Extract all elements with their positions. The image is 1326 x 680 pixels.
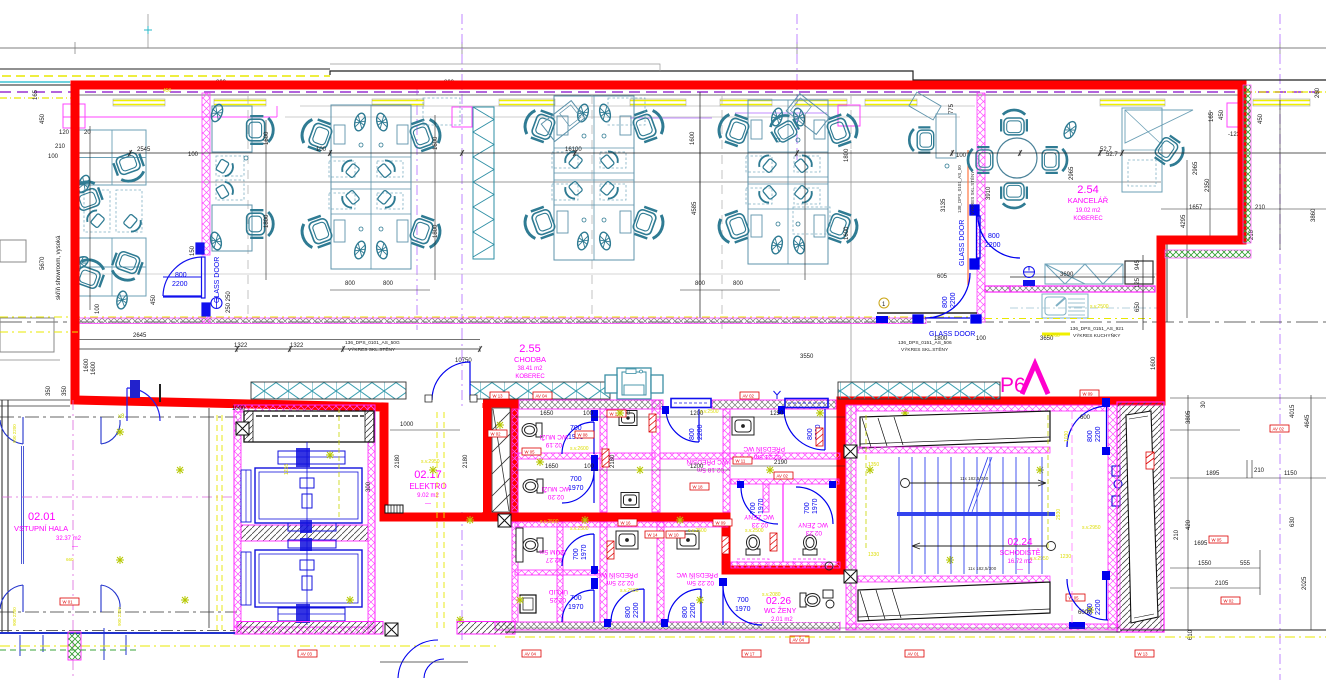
svg-text:PŘEDSÍŇ WC: PŘEDSÍŇ WC [596,571,638,580]
svg-text:30: 30 [1201,401,1207,408]
svg-text:700: 700 [570,595,582,602]
svg-text:3805: 3805 [1186,410,1192,424]
svg-text:800: 800 [942,296,949,308]
svg-text:WC MUŽI: WC MUŽI [539,433,568,442]
svg-text:s.v.2500: s.v.2500 [540,519,559,525]
svg-text:100: 100 [583,411,594,417]
svg-text:W 02: W 02 [491,432,502,437]
svg-text:02.24: 02.24 [1007,537,1032,548]
svg-text:250 250: 250 250 [226,291,232,313]
svg-text:800: 800 [625,606,632,618]
svg-text:1600: 1600 [91,361,97,375]
svg-text:260: 260 [1315,87,1321,98]
svg-text:800: 800 [345,281,356,287]
svg-text:1600: 1600 [84,358,90,372]
svg-text:2.01 m2: 2.01 m2 [771,617,793,623]
svg-text:2.54: 2.54 [1077,184,1098,196]
svg-text:700: 700 [570,476,582,483]
svg-text:AV 01: AV 01 [908,652,920,657]
svg-text:GLASS DOOR: GLASS DOOR [214,257,221,303]
svg-text:W 10: W 10 [669,533,680,538]
svg-text:1550: 1550 [1198,561,1212,567]
svg-text:2645: 2645 [133,333,147,339]
svg-text:W 13: W 13 [493,394,504,399]
svg-text:SCHODIŠTĚ: SCHODIŠTĚ [1000,548,1041,557]
svg-text:19.02 m2: 19.02 m2 [1075,208,1101,214]
svg-text:02.23: 02.23 [751,521,768,528]
svg-text:WC ŽENY: WC ŽENY [743,513,774,522]
svg-text:1970: 1970 [568,604,584,611]
svg-text:4585: 4585 [692,201,698,215]
svg-text:s.v.2080: s.v.2080 [762,592,781,598]
svg-text:300: 300 [366,481,372,492]
svg-text:s.v.2500: s.v.2500 [745,528,764,534]
svg-text:2200: 2200 [690,602,697,618]
svg-text:W 01: W 01 [63,600,74,605]
svg-text:2200: 2200 [697,424,704,440]
svg-text:AV 02: AV 02 [777,474,789,479]
svg-text:1200: 1200 [690,464,704,470]
svg-text:900 2200: 900 2200 [117,607,122,626]
svg-text:1657: 1657 [1189,205,1203,211]
svg-text:450: 450 [1258,113,1264,124]
svg-text:700: 700 [737,597,749,604]
svg-text:800: 800 [682,606,689,618]
svg-text:2190: 2190 [774,460,788,466]
svg-text:AV 02: AV 02 [743,394,755,399]
svg-text:600: 600 [1080,415,1091,421]
svg-text:450: 450 [40,113,46,124]
svg-text:100: 100 [956,153,967,159]
svg-text:11x 182,5/300: 11x 182,5/300 [960,476,989,481]
svg-text:CHODBA: CHODBA [514,355,546,364]
svg-text:900 2200: 900 2200 [12,424,17,443]
svg-text:120: 120 [59,130,70,136]
svg-text:125: 125 [1135,277,1141,288]
svg-text:210: 210 [1174,529,1180,540]
svg-text:02.27: 02.27 [545,556,562,563]
svg-text:1695: 1695 [1194,541,1208,547]
svg-text:—: — [425,501,431,507]
svg-text:700: 700 [804,502,811,514]
svg-text:W 09: W 09 [716,521,727,526]
svg-text:02.19: 02.19 [545,441,562,448]
svg-text:630: 630 [1290,516,1296,527]
svg-text:W 17: W 17 [745,652,756,657]
svg-text:skříň showroom, vysoká: skříň showroom, vysoká [56,235,62,300]
svg-text:210: 210 [55,144,66,150]
svg-text:s.v.2950: s.v.2950 [1082,525,1101,531]
svg-text:1600: 1600 [690,131,696,145]
svg-text:450: 450 [151,294,157,305]
svg-text:ÚKLID: ÚKLID [549,588,568,597]
svg-text:s.v.2500: s.v.2500 [1090,304,1109,310]
svg-text:100: 100 [584,464,595,470]
svg-text:2965: 2965 [1069,166,1075,180]
svg-text:555: 555 [1240,561,1251,567]
svg-text:AV 04: AV 04 [793,638,805,643]
svg-text:3690: 3690 [1060,272,1074,278]
svg-text:KANCELÁŘ: KANCELÁŘ [1068,196,1109,205]
svg-text:1600: 1600 [844,226,850,240]
svg-text:1600: 1600 [264,131,270,145]
svg-text:02.25: 02.25 [549,596,566,603]
svg-text:PŘEDSÍŇ WC: PŘEDSÍŇ WC [743,445,785,454]
svg-text:W 09: W 09 [1083,392,1094,397]
svg-text:1230: 1230 [1060,554,1071,560]
svg-text:136_DPS_0151_AS_506: 136_DPS_0151_AS_506 [898,340,952,346]
svg-text:2965: 2965 [1193,161,1199,175]
svg-text:800: 800 [1087,430,1094,442]
svg-text:450: 450 [163,88,172,94]
svg-text:4295: 4295 [1181,214,1187,228]
svg-text:1600: 1600 [433,136,439,150]
svg-text:W 18: W 18 [693,485,704,490]
svg-text:VSTUPNÍ HALA: VSTUPNÍ HALA [14,524,68,533]
svg-text:2200: 2200 [950,292,957,308]
svg-text:W 13: W 13 [1138,652,1149,657]
svg-text:1970: 1970 [581,544,588,560]
svg-text:1322: 1322 [234,343,248,349]
svg-text:02.23: 02.23 [805,529,822,536]
svg-text:4645: 4645 [1305,414,1311,428]
svg-text:32.37 m2: 32.37 m2 [56,536,82,542]
svg-text:VÝKRES SKL.STĚNY: VÝKRES SKL.STĚNY [968,171,975,215]
svg-text:1800: 1800 [844,148,850,162]
svg-text:WC ŽENY: WC ŽENY [764,606,797,615]
svg-text:350: 350 [46,385,52,396]
svg-text:02.22 5m: 02.22 5m [687,579,714,586]
svg-text:W 16: W 16 [621,521,632,526]
svg-text:1150: 1150 [1284,471,1298,477]
svg-text:210: 210 [1255,205,1266,211]
svg-text:02.21 5m: 02.21 5m [754,453,781,460]
svg-text:660: 660 [66,557,74,562]
svg-text:s.v.2500: s.v.2500 [570,526,589,532]
svg-text:2200: 2200 [1095,426,1102,442]
svg-text:1350: 1350 [868,462,879,468]
svg-text:3135: 3135 [941,198,947,212]
svg-text:420: 420 [1186,519,1192,530]
svg-text:100: 100 [95,303,101,314]
svg-text:650: 650 [1135,301,1141,312]
svg-text:x8: x8 [118,414,125,420]
svg-text:100: 100 [48,154,59,160]
svg-text:800: 800 [695,281,706,287]
svg-text:1322: 1322 [290,343,304,349]
svg-text:1970: 1970 [812,498,819,514]
svg-text:W 11: W 11 [736,459,746,464]
svg-text:1250: 1250 [770,411,784,417]
svg-text:1330: 1330 [868,552,879,558]
svg-text:38.41 m2: 38.41 m2 [517,366,543,372]
svg-text:2200: 2200 [172,281,188,288]
svg-text:VÝKRES KUCHYŇKY: VÝKRES KUCHYŇKY [1073,332,1121,339]
svg-text:1970: 1970 [735,606,751,613]
svg-text:1800: 1800 [433,224,439,238]
svg-text:900 2200: 900 2200 [12,607,17,626]
svg-text:AV 04: AV 04 [525,652,537,657]
svg-text:52.7: 52.7 [1106,152,1118,158]
svg-text:s.v.2500: s.v.2500 [700,409,719,415]
svg-text:02.01: 02.01 [28,511,56,523]
svg-text:3910: 3910 [986,186,992,200]
svg-text:2.55: 2.55 [519,343,540,355]
svg-text:W 02: W 02 [1224,599,1235,604]
svg-text:16.72 m2: 16.72 m2 [1007,559,1033,565]
svg-text:11x 182,5/300: 11x 182,5/300 [968,566,997,571]
svg-text:AV 03: AV 03 [301,652,313,657]
svg-text:02.22 5m: 02.22 5m [607,579,634,586]
svg-text:2930: 2930 [1056,509,1062,520]
svg-text:2200: 2200 [985,242,1001,249]
svg-text:s.v.260: s.v.260 [1044,333,1060,339]
svg-text:800: 800 [1087,603,1094,615]
svg-text:WC ŽENY: WC ŽENY [797,521,828,530]
svg-text:3550: 3550 [800,354,814,360]
svg-text:WC MUŽI: WC MUŽI [541,485,570,494]
svg-text:W 05: W 05 [525,450,536,455]
svg-text:800: 800 [807,428,814,440]
svg-text:700: 700 [573,548,580,560]
svg-text:PŘEDSÍŇ WC: PŘEDSÍŇ WC [676,571,718,580]
svg-text:AV 04: AV 04 [536,394,548,399]
svg-text:100: 100 [316,147,327,153]
svg-text:2025: 2025 [1302,576,1308,590]
svg-text:700: 700 [750,502,757,514]
svg-text:136_DPS_0101_AS_50G: 136_DPS_0101_AS_50G [345,340,400,346]
svg-text:1000: 1000 [232,406,246,412]
svg-text:s.v.2500: s.v.2500 [688,528,707,534]
svg-text:2200: 2200 [633,602,640,618]
svg-text:AV 02: AV 02 [1273,427,1285,432]
svg-text:800: 800 [175,272,187,279]
svg-text:1650: 1650 [545,464,559,470]
svg-text:800: 800 [383,281,394,287]
svg-text:KOBEREC: KOBEREC [1073,216,1103,222]
svg-text:2180: 2180 [610,454,616,468]
svg-text:4015: 4015 [1290,404,1296,418]
svg-text:—: — [1017,567,1023,573]
svg-text:1650: 1650 [540,411,554,417]
svg-text:138_DPS_0101_AS_50: 138_DPS_0101_AS_50 [957,165,962,213]
svg-text:100: 100 [976,336,987,342]
svg-text:2180: 2180 [463,454,469,468]
svg-text:610: 610 [1188,629,1194,640]
svg-text:800: 800 [733,281,744,287]
svg-text:210: 210 [1254,468,1265,474]
svg-text:02.17: 02.17 [414,469,442,481]
svg-text:W 05: W 05 [1212,538,1223,543]
svg-text:2105: 2105 [1215,581,1229,587]
svg-text:1030: 1030 [1064,431,1070,442]
svg-text:1895: 1895 [1206,471,1220,477]
svg-text:s.v.2500: s.v.2500 [620,588,639,594]
svg-text:02.20: 02.20 [547,493,564,500]
svg-text:450: 450 [1219,109,1225,120]
svg-text:2200: 2200 [1095,599,1102,615]
svg-text:1000: 1000 [400,422,414,428]
svg-text:5670: 5670 [40,256,46,270]
svg-text:775: 775 [949,103,955,114]
svg-text:3860: 3860 [1311,208,1317,222]
svg-text:150: 150 [190,245,196,256]
svg-text:945: 945 [1135,259,1141,270]
svg-text:ELEKTRO: ELEKTRO [409,482,446,491]
svg-text:KOBEREC: KOBEREC [515,374,545,380]
svg-text:600: 600 [1078,610,1089,616]
svg-text:1600: 1600 [1151,356,1157,370]
svg-text:16100: 16100 [565,147,582,153]
svg-text:—: — [72,544,78,550]
svg-text:W 14: W 14 [648,533,659,538]
svg-text:800: 800 [988,233,1000,240]
svg-text:1970: 1970 [758,498,765,514]
svg-text:s.v.2600: s.v.2600 [570,446,589,452]
svg-text:20: 20 [84,130,91,136]
svg-text:2545: 2545 [137,147,151,153]
svg-text:136_DPS_0151_AS_921: 136_DPS_0151_AS_921 [1070,326,1124,332]
svg-text:9.02 m2: 9.02 m2 [417,493,439,499]
svg-text:1800: 1800 [264,214,270,228]
svg-text:W 08: W 08 [578,433,589,438]
svg-text:2180: 2180 [395,454,401,468]
svg-text:1236: 1236 [284,464,290,475]
svg-text:350: 350 [62,385,68,396]
svg-text:800: 800 [689,428,696,440]
svg-text:165: 165 [33,89,39,100]
svg-text:IZUM 5m: IZUM 5m [539,548,566,555]
svg-text:605: 605 [937,274,948,280]
svg-text:GLASS DOOR: GLASS DOOR [959,220,966,266]
